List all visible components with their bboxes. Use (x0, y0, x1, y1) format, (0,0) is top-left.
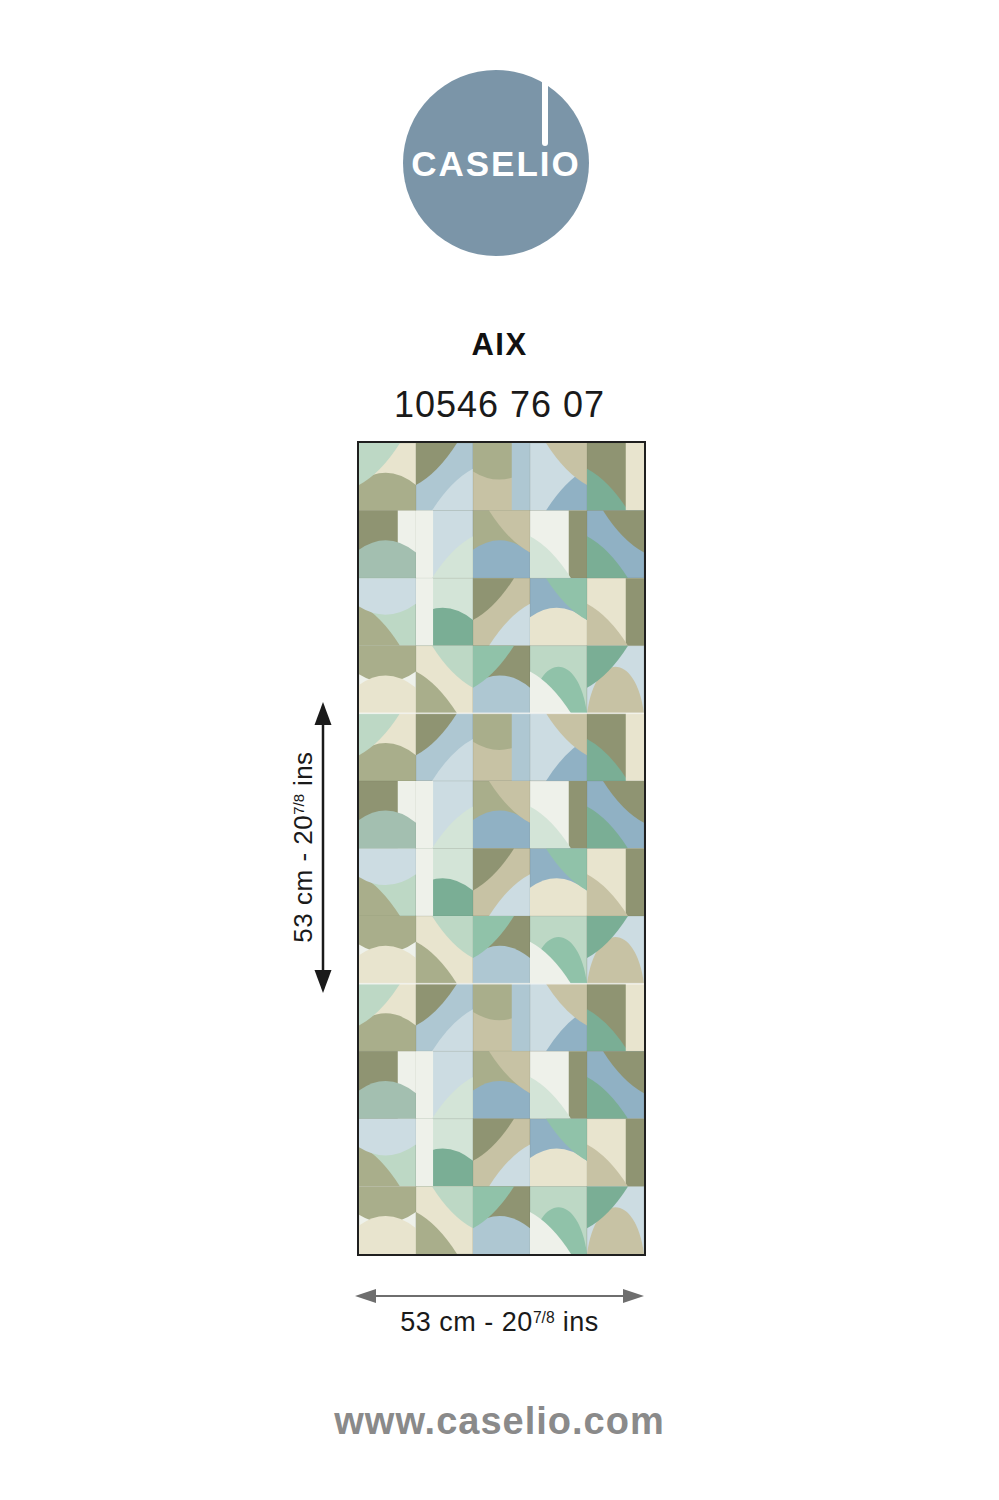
logo-accent-bar-icon (542, 82, 548, 146)
arrowhead-down-icon (315, 970, 332, 993)
vertical-dimension-unit: ins (288, 751, 318, 793)
website-url: www.caselio.com (0, 1400, 999, 1443)
horizontal-dimension-fraction: 7/8 (533, 1309, 555, 1326)
horizontal-dimension-unit: ins (555, 1307, 599, 1337)
horizontal-dimension-arrow (353, 1286, 646, 1306)
product-name: AIX (0, 327, 999, 363)
horizontal-dimension-value: 53 cm - 20 (400, 1307, 533, 1337)
arrowhead-up-icon (315, 702, 332, 725)
arrowhead-left-icon (355, 1289, 376, 1303)
vertical-dimension-label: 53 cm - 207/8 ins (288, 751, 319, 942)
product-code: 10546 76 07 (0, 384, 999, 426)
wallpaper-swatch-pattern (359, 443, 644, 1254)
vertical-dimension-fraction: 7/8 (290, 794, 307, 815)
brand-logo: CASELIO (403, 70, 589, 256)
wallpaper-swatch (357, 441, 646, 1256)
vertical-dimension-value: 53 cm - 20 (288, 815, 318, 943)
horizontal-dimension-label: 53 cm - 207/8 ins (0, 1307, 999, 1338)
arrowhead-right-icon (623, 1289, 644, 1303)
brand-name: CASELIO (411, 146, 581, 181)
page-root: CASELIO AIX 10546 76 07 53 cm - 207/8 in… (0, 0, 999, 1500)
